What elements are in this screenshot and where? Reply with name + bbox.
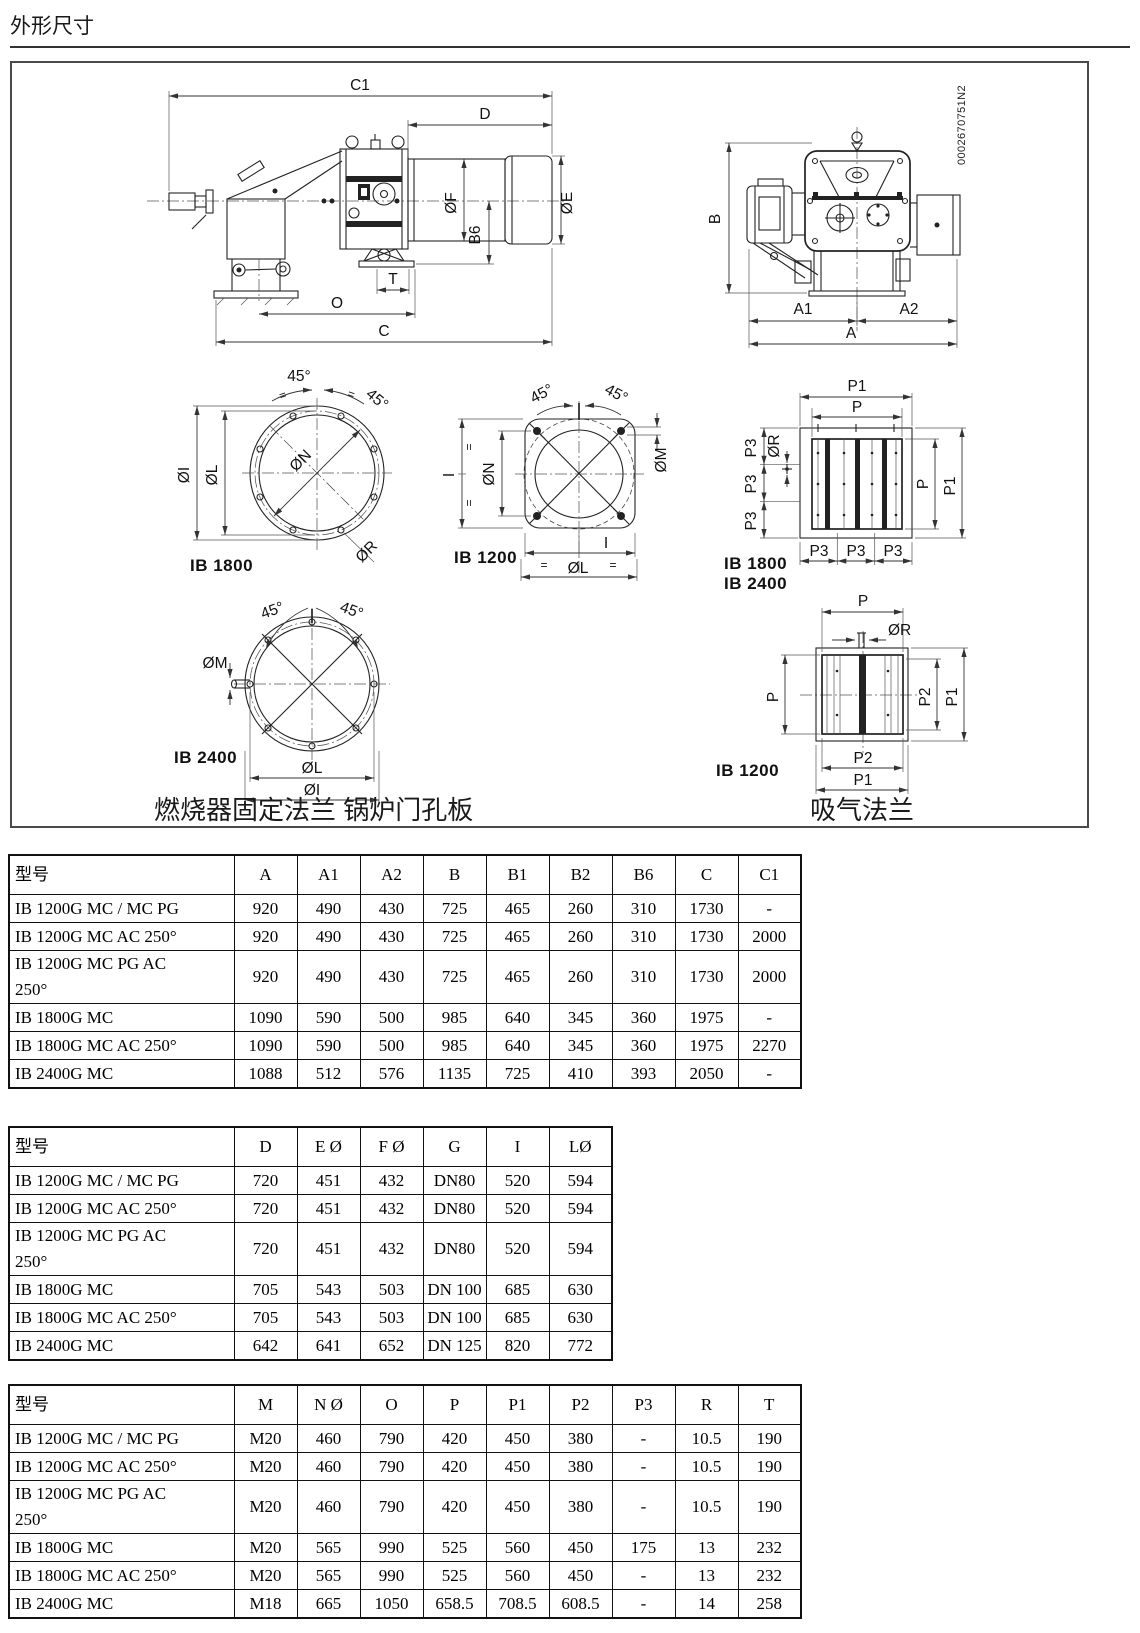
dim-label-a1: A1 xyxy=(794,301,813,318)
value-cell: 460 xyxy=(297,1425,360,1453)
value-cell: 232 xyxy=(738,1562,801,1590)
value-cell: 725 xyxy=(423,951,486,1004)
dimensions-table-a: 型号AA1A2BB1B2B6CC1 IB 1200G MC / MC PG920… xyxy=(8,854,802,1089)
suction-flange-ib1200-drawing: P ØR P P2 P1 P2 P xyxy=(716,593,968,794)
dim-label-m-diameter: ØM xyxy=(653,448,670,473)
table-header-row: 型号MN ØOPP1P2P3RT xyxy=(9,1385,801,1425)
dim-label-r-diameter: ØR xyxy=(888,622,911,639)
value-cell: 642 xyxy=(234,1332,297,1361)
value-cell: 190 xyxy=(738,1425,801,1453)
col-header: P2 xyxy=(549,1385,612,1425)
equal-mark: = xyxy=(462,499,476,506)
value-cell: 450 xyxy=(549,1534,612,1562)
value-cell: 590 xyxy=(297,1032,360,1060)
table-row: IB 1200G MC / MC PG720451432DN80520594 xyxy=(9,1167,612,1195)
value-cell: 543 xyxy=(297,1276,360,1304)
page-title: 外形尺寸 xyxy=(10,10,1130,40)
caption-fixing-flange: 燃烧器固定法兰 锅炉门孔板 xyxy=(154,795,473,824)
model-cell: IB 1800G MC xyxy=(9,1004,234,1032)
dim-label-p1: P1 xyxy=(848,378,867,395)
value-cell: 465 xyxy=(486,895,549,923)
flange-ib1200-drawing: 45° 45° I = = ØN ØM I = = xyxy=(441,381,670,581)
value-cell: 260 xyxy=(549,923,612,951)
model-cell: IB 1800G MC AC 250° xyxy=(9,1032,234,1060)
col-header: P xyxy=(423,1385,486,1425)
value-cell: 630 xyxy=(549,1304,612,1332)
dim-label-n-diameter: ØN xyxy=(287,447,315,475)
value-cell: 525 xyxy=(423,1562,486,1590)
value-cell: 685 xyxy=(486,1276,549,1304)
dim-label-p3: P3 xyxy=(884,543,903,560)
value-cell: 1088 xyxy=(234,1060,297,1089)
value-cell: 451 xyxy=(297,1223,360,1276)
value-cell: - xyxy=(612,1425,675,1453)
value-cell: 490 xyxy=(297,895,360,923)
dim-label-f: ØF xyxy=(443,192,460,214)
equal-mark: = xyxy=(462,443,476,450)
model-cell: IB 1200G MC / MC PG xyxy=(9,1425,234,1453)
value-cell: 393 xyxy=(612,1060,675,1089)
col-header: LØ xyxy=(549,1127,612,1167)
value-cell: 432 xyxy=(360,1167,423,1195)
value-cell: DN 100 xyxy=(423,1304,486,1332)
dim-label-l-diameter: ØL xyxy=(204,464,221,485)
dim-label-p3: P3 xyxy=(743,439,760,458)
value-cell: 590 xyxy=(297,1004,360,1032)
model-cell: IB 1200G MC AC 250° xyxy=(9,923,234,951)
value-cell: DN80 xyxy=(423,1195,486,1223)
value-cell: 985 xyxy=(423,1004,486,1032)
value-cell: 1050 xyxy=(360,1590,423,1619)
value-cell: 10.5 xyxy=(675,1453,738,1481)
value-cell: - xyxy=(612,1590,675,1619)
col-header: D xyxy=(234,1127,297,1167)
value-cell: M20 xyxy=(234,1481,297,1534)
model-cell: IB 1800G MC AC 250° xyxy=(9,1562,234,1590)
dim-label-p3: P3 xyxy=(847,543,866,560)
col-header: R xyxy=(675,1385,738,1425)
suction-flange-ib1800-2400-drawing: P1 P P3 P3 P3 ØR P xyxy=(724,378,966,593)
col-header: A2 xyxy=(360,855,423,895)
flange-model-label: IB 1800 xyxy=(190,556,253,575)
value-cell: 190 xyxy=(738,1481,801,1534)
value-cell: - xyxy=(612,1481,675,1534)
value-cell: 1090 xyxy=(234,1032,297,1060)
table-header-row: 型号DE ØF ØGILØ xyxy=(9,1127,612,1167)
value-cell: 790 xyxy=(360,1453,423,1481)
value-cell: 450 xyxy=(549,1562,612,1590)
side-view-drawing: C1 D ØF ØE B6 T O C xyxy=(147,77,576,346)
dim-label-45deg: 45° xyxy=(602,381,631,407)
value-cell: - xyxy=(738,1060,801,1089)
value-cell: M20 xyxy=(234,1562,297,1590)
value-cell: 420 xyxy=(423,1453,486,1481)
value-cell: M20 xyxy=(234,1425,297,1453)
model-cell: IB 2400G MC xyxy=(9,1060,234,1089)
model-cell: IB 1800G MC AC 250° xyxy=(9,1304,234,1332)
value-cell: 705 xyxy=(234,1304,297,1332)
col-header: B2 xyxy=(549,855,612,895)
dim-label-t: T xyxy=(388,271,398,288)
value-cell: 420 xyxy=(423,1425,486,1453)
value-cell: 260 xyxy=(549,951,612,1004)
value-cell: 345 xyxy=(549,1032,612,1060)
dim-label-p: P xyxy=(858,593,868,610)
equal-mark: = xyxy=(346,386,357,401)
flange-model-label: IB 1200 xyxy=(716,761,779,780)
dim-label-c: C xyxy=(378,323,389,340)
figure-captions: 燃烧器固定法兰 锅炉门孔板 吸气法兰 xyxy=(154,795,914,824)
value-cell: 450 xyxy=(486,1425,549,1453)
value-cell: 490 xyxy=(297,923,360,951)
dim-label-p1: P1 xyxy=(854,772,873,789)
model-cell: IB 1200G MC / MC PG xyxy=(9,895,234,923)
dim-label-b6: B6 xyxy=(467,226,484,245)
value-cell: 310 xyxy=(612,951,675,1004)
value-cell: 430 xyxy=(360,895,423,923)
value-cell: 725 xyxy=(486,1060,549,1089)
value-cell: 990 xyxy=(360,1562,423,1590)
value-cell: 990 xyxy=(360,1534,423,1562)
flange-model-label: IB 1200 xyxy=(454,548,517,567)
value-cell: M18 xyxy=(234,1590,297,1619)
front-view-drawing: B A1 A2 A xyxy=(707,127,960,348)
col-header: F Ø xyxy=(360,1127,423,1167)
dim-label-p: P xyxy=(852,399,862,416)
value-cell: DN80 xyxy=(423,1223,486,1276)
value-cell: 360 xyxy=(612,1004,675,1032)
value-cell: 460 xyxy=(297,1481,360,1534)
dim-label-c1: C1 xyxy=(350,77,370,94)
equal-mark: = xyxy=(277,387,288,402)
col-header: C1 xyxy=(738,855,801,895)
dim-label-p: P xyxy=(765,692,782,702)
value-cell: 2050 xyxy=(675,1060,738,1089)
col-header: C xyxy=(675,855,738,895)
dim-label-n-diameter: ØN xyxy=(481,462,498,485)
value-cell: DN 100 xyxy=(423,1276,486,1304)
value-cell: 190 xyxy=(738,1453,801,1481)
model-cell: IB 1200G MC PG AC 250° xyxy=(9,951,234,1004)
value-cell: 520 xyxy=(486,1223,549,1276)
value-cell: 451 xyxy=(297,1167,360,1195)
col-header: O xyxy=(360,1385,423,1425)
model-cell: IB 1200G MC PG AC 250° xyxy=(9,1223,234,1276)
dim-label-p3: P3 xyxy=(743,512,760,531)
value-cell: 1730 xyxy=(675,923,738,951)
value-cell: 790 xyxy=(360,1425,423,1453)
flange-ib2400-drawing: 45° 45° ØM ØL ØI IB 2400 xyxy=(174,599,390,804)
value-cell: DN80 xyxy=(423,1167,486,1195)
value-cell: 13 xyxy=(675,1562,738,1590)
value-cell: 503 xyxy=(360,1276,423,1304)
table-row: IB 2400G MC108851257611357254103932050- xyxy=(9,1060,801,1089)
model-col-header: 型号 xyxy=(9,1127,234,1167)
value-cell: 705 xyxy=(234,1276,297,1304)
value-cell: 520 xyxy=(486,1195,549,1223)
value-cell: 258 xyxy=(738,1590,801,1619)
value-cell: 665 xyxy=(297,1590,360,1619)
value-cell: 14 xyxy=(675,1590,738,1619)
value-cell: 345 xyxy=(549,1004,612,1032)
value-cell: M20 xyxy=(234,1534,297,1562)
dim-label-o: O xyxy=(331,295,343,312)
value-cell: 380 xyxy=(549,1453,612,1481)
value-cell: 772 xyxy=(549,1332,612,1361)
value-cell: 450 xyxy=(486,1481,549,1534)
value-cell: 708.5 xyxy=(486,1590,549,1619)
table-header-row: 型号AA1A2BB1B2B6CC1 xyxy=(9,855,801,895)
equal-mark: = xyxy=(609,558,616,572)
table-row: IB 1200G MC AC 250°920490430725465260310… xyxy=(9,923,801,951)
value-cell: 410 xyxy=(549,1060,612,1089)
value-cell: 652 xyxy=(360,1332,423,1361)
value-cell: 565 xyxy=(297,1534,360,1562)
value-cell: 465 xyxy=(486,951,549,1004)
value-cell: 725 xyxy=(423,923,486,951)
dim-label-p2: P2 xyxy=(917,688,934,707)
value-cell: 175 xyxy=(612,1534,675,1562)
col-header: I xyxy=(486,1127,549,1167)
value-cell: - xyxy=(612,1562,675,1590)
model-cell: IB 1200G MC PG AC 250° xyxy=(9,1481,234,1534)
value-cell: - xyxy=(612,1453,675,1481)
model-cell: IB 1200G MC / MC PG xyxy=(9,1167,234,1195)
dim-label-r-diameter: ØR xyxy=(353,538,381,566)
value-cell: 560 xyxy=(486,1534,549,1562)
value-cell: 310 xyxy=(612,923,675,951)
col-header: G xyxy=(423,1127,486,1167)
dim-label-45deg: 45° xyxy=(259,599,287,623)
value-cell: - xyxy=(738,1004,801,1032)
dim-label-p2: P2 xyxy=(854,750,873,767)
value-cell: 594 xyxy=(549,1167,612,1195)
value-cell: 1975 xyxy=(675,1032,738,1060)
value-cell: DN 125 xyxy=(423,1332,486,1361)
table-row: IB 1800G MC AC 250°M20565990525560450-13… xyxy=(9,1562,801,1590)
col-header: P3 xyxy=(612,1385,675,1425)
value-cell: 380 xyxy=(549,1481,612,1534)
table-row: IB 1200G MC AC 250°720451432DN80520594 xyxy=(9,1195,612,1223)
dim-label-m-diameter: ØM xyxy=(203,655,228,672)
value-cell: 720 xyxy=(234,1195,297,1223)
value-cell: 360 xyxy=(612,1032,675,1060)
col-header: P1 xyxy=(486,1385,549,1425)
model-cell: IB 1800G MC xyxy=(9,1534,234,1562)
value-cell: 2270 xyxy=(738,1032,801,1060)
model-cell: IB 1200G MC AC 250° xyxy=(9,1195,234,1223)
dim-label-r-diameter: ØR xyxy=(766,434,783,457)
value-cell: 1730 xyxy=(675,895,738,923)
value-cell: 500 xyxy=(360,1004,423,1032)
value-cell: 1090 xyxy=(234,1004,297,1032)
table-row: IB 2400G MCM186651050658.5708.5608.5-142… xyxy=(9,1590,801,1619)
col-header: T xyxy=(738,1385,801,1425)
table-row: IB 2400G MC642641652DN 125820772 xyxy=(9,1332,612,1361)
value-cell: 594 xyxy=(549,1223,612,1276)
dim-label-p3: P3 xyxy=(810,543,829,560)
table-row: IB 1200G MC / MC PGM20460790420450380-10… xyxy=(9,1425,801,1453)
value-cell: 920 xyxy=(234,923,297,951)
value-cell: 920 xyxy=(234,895,297,923)
model-col-header: 型号 xyxy=(9,855,234,895)
dim-label-i: I xyxy=(604,535,608,552)
dim-label-p: P xyxy=(915,479,932,489)
value-cell: 641 xyxy=(297,1332,360,1361)
value-cell: 576 xyxy=(360,1060,423,1089)
col-header: N Ø xyxy=(297,1385,360,1425)
dim-label-a: A xyxy=(846,325,857,342)
value-cell: 520 xyxy=(486,1167,549,1195)
col-header: B6 xyxy=(612,855,675,895)
dim-label-d: D xyxy=(479,106,490,123)
title-block: 外形尺寸 xyxy=(10,10,1130,48)
table-row: IB 1200G MC AC 250°M20460790420450380-10… xyxy=(9,1453,801,1481)
value-cell: 594 xyxy=(549,1195,612,1223)
value-cell: 490 xyxy=(297,951,360,1004)
value-cell: 1975 xyxy=(675,1004,738,1032)
dim-label-e: ØE xyxy=(559,192,576,214)
dim-label-l-diameter: ØL xyxy=(568,560,589,577)
value-cell: 451 xyxy=(297,1195,360,1223)
value-cell: 920 xyxy=(234,951,297,1004)
value-cell: 790 xyxy=(360,1481,423,1534)
figure-svg: C1 D ØF ØE B6 T O C xyxy=(12,63,1087,824)
value-cell: 10.5 xyxy=(675,1481,738,1534)
col-header: E Ø xyxy=(297,1127,360,1167)
col-header: B xyxy=(423,855,486,895)
dim-label-p3: P3 xyxy=(743,475,760,494)
value-cell: 503 xyxy=(360,1304,423,1332)
flange-ib1800-drawing: ØN 45° 45° = = ØI ØL ØR IB 1800 xyxy=(176,368,392,575)
value-cell: 13 xyxy=(675,1534,738,1562)
model-cell: IB 2400G MC xyxy=(9,1332,234,1361)
equal-mark: = xyxy=(540,558,547,572)
value-cell: 2000 xyxy=(738,923,801,951)
dim-label-45deg: 45° xyxy=(362,386,391,414)
dimensions-table-m: 型号MN ØOPP1P2P3RT IB 1200G MC / MC PGM204… xyxy=(8,1384,802,1619)
value-cell: 380 xyxy=(549,1425,612,1453)
dimensions-table-d: 型号DE ØF ØGILØ IB 1200G MC / MC PG7204514… xyxy=(8,1126,613,1361)
dim-label-45deg: 45° xyxy=(338,599,366,623)
dim-label-b: B xyxy=(707,214,724,224)
table-row: IB 1800G MCM2056599052556045017513232 xyxy=(9,1534,801,1562)
value-cell: 608.5 xyxy=(549,1590,612,1619)
value-cell: 985 xyxy=(423,1032,486,1060)
value-cell: 10.5 xyxy=(675,1425,738,1453)
value-cell: 630 xyxy=(549,1276,612,1304)
col-header: B1 xyxy=(486,855,549,895)
datasheet-page: 外形尺寸 xyxy=(0,0,1140,1633)
value-cell: 640 xyxy=(486,1004,549,1032)
value-cell: 512 xyxy=(297,1060,360,1089)
value-cell: 565 xyxy=(297,1562,360,1590)
dim-label-i: I xyxy=(441,473,458,477)
value-cell: 1730 xyxy=(675,951,738,1004)
dim-label-p1: P1 xyxy=(944,688,961,707)
value-cell: 450 xyxy=(486,1453,549,1481)
value-cell: 430 xyxy=(360,923,423,951)
value-cell: 820 xyxy=(486,1332,549,1361)
col-header: A xyxy=(234,855,297,895)
dim-label-i-diameter: ØI xyxy=(176,467,193,483)
value-cell: 430 xyxy=(360,951,423,1004)
value-cell: 232 xyxy=(738,1534,801,1562)
dim-label-l-diameter: ØL xyxy=(302,760,323,777)
flange-model-label: IB 2400 xyxy=(724,574,787,593)
table-row: IB 1800G MC AC 250°109059050098564034536… xyxy=(9,1032,801,1060)
model-cell: IB 1800G MC xyxy=(9,1276,234,1304)
value-cell: 500 xyxy=(360,1032,423,1060)
col-header: A1 xyxy=(297,855,360,895)
value-cell: 725 xyxy=(423,895,486,923)
table-row: IB 1200G MC PG AC 250°M20460790420450380… xyxy=(9,1481,801,1534)
value-cell: 685 xyxy=(486,1304,549,1332)
model-cell: IB 2400G MC xyxy=(9,1590,234,1619)
table-row: IB 1800G MC10905905009856403453601975- xyxy=(9,1004,801,1032)
dim-label-45deg: 45° xyxy=(287,368,310,385)
value-cell: 640 xyxy=(486,1032,549,1060)
value-cell: 1135 xyxy=(423,1060,486,1089)
dim-label-45deg: 45° xyxy=(528,381,557,407)
value-cell: - xyxy=(738,895,801,923)
value-cell: 525 xyxy=(423,1534,486,1562)
col-header: M xyxy=(234,1385,297,1425)
part-code: 0002670751N2 xyxy=(956,85,968,165)
table-row: IB 1200G MC / MC PG920490430725465260310… xyxy=(9,895,801,923)
value-cell: M20 xyxy=(234,1453,297,1481)
table-row: IB 1800G MC AC 250°705543503DN 100685630 xyxy=(9,1304,612,1332)
dim-label-a2: A2 xyxy=(900,301,919,318)
table-row: IB 1200G MC PG AC 250°920490430725465260… xyxy=(9,951,801,1004)
value-cell: 460 xyxy=(297,1453,360,1481)
value-cell: 260 xyxy=(549,895,612,923)
caption-suction-flange: 吸气法兰 xyxy=(810,795,914,824)
flange-model-label: IB 2400 xyxy=(174,748,237,767)
value-cell: 543 xyxy=(297,1304,360,1332)
value-cell: 720 xyxy=(234,1167,297,1195)
value-cell: 420 xyxy=(423,1481,486,1534)
value-cell: 432 xyxy=(360,1223,423,1276)
flange-model-label: IB 1800 xyxy=(724,554,787,573)
dimension-figure: C1 D ØF ØE B6 T O C xyxy=(10,61,1089,828)
value-cell: 658.5 xyxy=(423,1590,486,1619)
model-cell: IB 1200G MC AC 250° xyxy=(9,1453,234,1481)
value-cell: 465 xyxy=(486,923,549,951)
table-row: IB 1800G MC705543503DN 100685630 xyxy=(9,1276,612,1304)
value-cell: 310 xyxy=(612,895,675,923)
value-cell: 560 xyxy=(486,1562,549,1590)
value-cell: 720 xyxy=(234,1223,297,1276)
table-row: IB 1200G MC PG AC 250°720451432DN8052059… xyxy=(9,1223,612,1276)
value-cell: 432 xyxy=(360,1195,423,1223)
dim-label-p1: P1 xyxy=(942,477,959,496)
value-cell: 2000 xyxy=(738,951,801,1004)
model-col-header: 型号 xyxy=(9,1385,234,1425)
